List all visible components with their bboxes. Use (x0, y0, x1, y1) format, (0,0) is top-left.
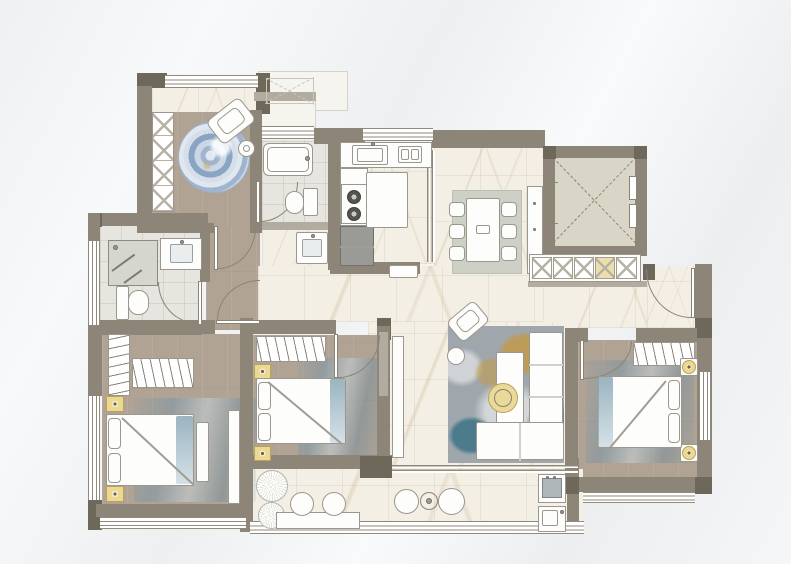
washer-knob (560, 510, 564, 514)
dining-chair-2 (449, 224, 465, 239)
sofa (529, 332, 563, 428)
window-bay (262, 126, 314, 139)
stove-burner-1 (347, 190, 361, 204)
bed2-pillow-2 (258, 413, 271, 441)
cabinet-knob-1 (533, 202, 536, 205)
window-bath1-west (88, 241, 100, 325)
balcony-pouf-1 (290, 492, 314, 516)
bed2-pillow-1 (258, 382, 271, 410)
stove-burner-2 (347, 207, 361, 221)
dining-chair-1 (449, 202, 465, 217)
master-nightstand-lamp-2 (106, 486, 124, 502)
dining-chair-6 (501, 246, 517, 261)
window-leisure-top (165, 75, 258, 88)
dining-chair-4 (501, 202, 517, 217)
toilet1-bowl (128, 290, 149, 315)
shower-head (113, 245, 118, 250)
wall-elevator-top (543, 146, 647, 158)
dining-chair-5 (501, 224, 517, 239)
vanity2-tap (311, 234, 315, 238)
door-entry-leaf (691, 268, 695, 318)
sofa-cushion-line-1 (529, 364, 563, 366)
master-nightstand-lamp-1 (106, 396, 124, 412)
wall-master-east (240, 318, 253, 532)
dining-chair-3 (449, 246, 465, 261)
leisure-closet (152, 112, 174, 212)
balcony-plant-1 (256, 470, 288, 502)
wall-bath2-vanity (262, 222, 328, 230)
vanity1-basin (170, 244, 193, 263)
bed2-throw (330, 379, 345, 443)
wall-bed2-tv-niche (379, 332, 388, 396)
wall-bed3-bottom (578, 477, 697, 492)
kitchen-island (366, 172, 408, 228)
shoe-cell-1 (532, 257, 552, 279)
bed3-pillow-2 (668, 413, 680, 443)
window-bed3-south (583, 492, 695, 503)
balcony-bench (276, 512, 360, 529)
vanity2-basin (302, 239, 322, 257)
bed3-throw (598, 377, 613, 447)
wall-entry-pillar (695, 318, 712, 340)
wall-elevator-ne (634, 146, 647, 159)
wall-dining-top (432, 130, 545, 148)
wall-bed2-top (250, 320, 336, 334)
door-bath1-leaf (198, 281, 202, 325)
master-pillow-1 (108, 418, 121, 449)
toilet2-bowl (285, 191, 304, 214)
wall-master-west (88, 332, 102, 396)
wall-bed3-se (695, 477, 712, 494)
page-background: { "meta": {"type": "residential-floor-pl… (0, 0, 791, 564)
balcony-pouf-2 (322, 492, 346, 516)
toilet2-tank (303, 188, 318, 216)
balcony-sliding-door (392, 465, 578, 473)
balcony-pouf-4 (438, 488, 465, 515)
window-master-south (100, 517, 246, 529)
window-kitchen (363, 128, 433, 141)
elevator-bracket (549, 182, 558, 224)
bed3-nightstand-lamp-2 (682, 446, 696, 460)
bed2-nightstand-lamp-1 (254, 364, 271, 379)
vanity1-tap (180, 240, 184, 244)
wall-bed3-top-b (636, 328, 697, 342)
floor-plan (0, 0, 791, 564)
fridge-line (340, 246, 374, 248)
balcony-table-dot (426, 498, 432, 504)
shoe-cell-5 (616, 257, 637, 279)
master-bed-throw (176, 416, 193, 484)
laundry-tap-1 (546, 476, 549, 479)
wall-room1-left (137, 86, 152, 233)
window-master-west (88, 396, 100, 500)
living-tv-console (392, 336, 404, 458)
kitchen-appliance-a (401, 149, 409, 160)
wall-elevator-right (635, 146, 647, 256)
kitchen-sink-basin (357, 148, 383, 162)
dining-centerpiece (476, 225, 490, 234)
elevator-door-mark-1 (629, 176, 637, 200)
bed3-pillow-1 (668, 380, 680, 410)
shoe-cell-4 (595, 257, 615, 279)
master-wardrobe (132, 358, 194, 388)
window-bed3-east (699, 372, 711, 440)
kitchen-tap (371, 142, 375, 146)
living-side-table (447, 347, 465, 365)
kitchen-appliance-b (411, 149, 419, 160)
sofa-chaise-line (519, 423, 521, 461)
leisure-side-decor (243, 145, 250, 152)
master-tv-console (228, 410, 240, 504)
bathtub-tap (305, 156, 310, 161)
wall-bed2-se-pillar (360, 456, 392, 478)
bed2-nightstand-lamp-2 (254, 446, 271, 461)
washer-drum (542, 510, 558, 526)
cabinet-knob-2 (533, 228, 536, 231)
wall-bed3-sw (565, 477, 579, 494)
kitchen-bench (389, 265, 418, 278)
wall-bath1-top (96, 213, 208, 226)
wall-bath2-kitchen (328, 140, 340, 270)
wall-elevator-nw (543, 146, 556, 159)
wall-master-bottom (96, 504, 246, 517)
laundry-sink-basin (542, 478, 562, 498)
bathtub-inner (267, 147, 309, 172)
master-bench (196, 422, 209, 482)
shoe-cell-3 (574, 257, 594, 279)
shoe-cell-2 (553, 257, 573, 279)
laundry-tap-2 (553, 476, 556, 479)
master-closet (108, 334, 130, 396)
master-pillow-2 (108, 453, 121, 483)
door-master-leaf (216, 320, 260, 324)
gold-table-ring (494, 389, 512, 407)
sofa-cushion-line-2 (529, 396, 563, 398)
elevator-door-mark-2 (629, 204, 637, 228)
balcony-pouf-3 (394, 489, 419, 514)
bed2-wardrobe (256, 336, 326, 362)
bed3-nightstand-lamp-1 (682, 360, 696, 374)
wall-bath1-left-a (88, 213, 100, 241)
